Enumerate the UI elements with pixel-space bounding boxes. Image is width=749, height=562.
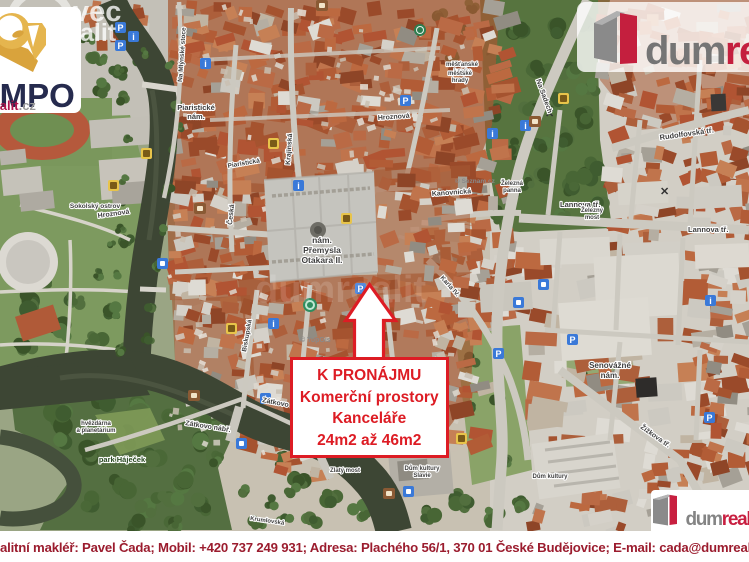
svg-text:dumrea: dumrea bbox=[645, 29, 749, 72]
svg-text:dumreali: dumreali bbox=[686, 509, 749, 530]
